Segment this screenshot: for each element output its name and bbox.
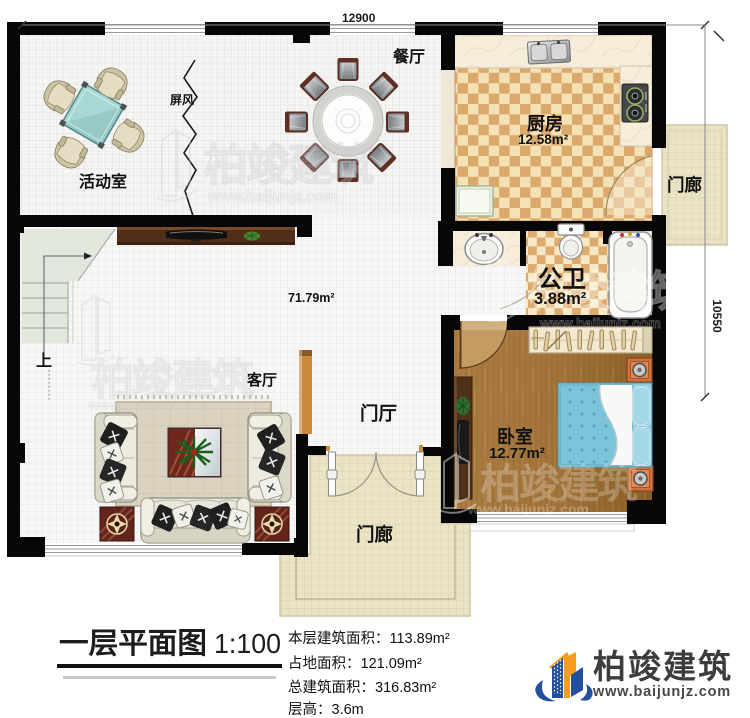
svg-text:门廊: 门廊 xyxy=(667,175,702,195)
svg-text:www.baijunjz.com: www.baijunjz.com xyxy=(207,188,337,205)
svg-text:门厅: 门厅 xyxy=(360,403,397,424)
svg-text:柏竣建筑: 柏竣建筑 xyxy=(92,356,254,403)
svg-text:活动室: 活动室 xyxy=(79,172,127,191)
svg-text:www.baijunjz.com: www.baijunjz.com xyxy=(592,684,731,700)
svg-text:www.baijunjz.com: www.baijunjz.com xyxy=(467,501,589,517)
svg-text:12900: 12900 xyxy=(342,11,376,25)
svg-text:屏风: 屏风 xyxy=(169,93,194,107)
svg-text:客厅: 客厅 xyxy=(246,371,277,389)
svg-text:占地面积：121.09m²: 占地面积：121.09m² xyxy=(288,655,422,672)
svg-text:10550: 10550 xyxy=(710,299,724,333)
svg-text:12.77m²: 12.77m² xyxy=(489,445,545,462)
svg-text:公卫: 公卫 xyxy=(538,266,586,293)
svg-text:71.79m²: 71.79m² xyxy=(288,291,335,305)
svg-text:餐厅: 餐厅 xyxy=(392,47,425,66)
svg-text:柏竣建筑: 柏竣建筑 xyxy=(593,648,733,685)
svg-text:1:100: 1:100 xyxy=(214,628,281,659)
svg-text:www.baijunjz.com: www.baijunjz.com xyxy=(87,397,209,413)
svg-text:上: 上 xyxy=(36,352,52,370)
svg-text:12.58m²: 12.58m² xyxy=(518,132,569,147)
svg-text:层高：3.6m: 层高：3.6m xyxy=(288,701,364,718)
svg-text:厨房: 厨房 xyxy=(527,113,563,134)
svg-text:一层平面图: 一层平面图 xyxy=(59,628,207,660)
svg-text:3.88m²: 3.88m² xyxy=(534,290,587,308)
svg-text:卧室: 卧室 xyxy=(497,426,533,447)
svg-text:门廊: 门廊 xyxy=(356,524,393,545)
svg-text:总建筑面积：316.83m²: 总建筑面积：316.83m² xyxy=(288,679,436,696)
svg-text:柏竣建筑: 柏竣建筑 xyxy=(204,141,374,190)
svg-text:本层建筑面积：113.89m²: 本层建筑面积：113.89m² xyxy=(288,630,450,647)
svg-text:www.baijunjz.com: www.baijunjz.com xyxy=(539,315,661,331)
